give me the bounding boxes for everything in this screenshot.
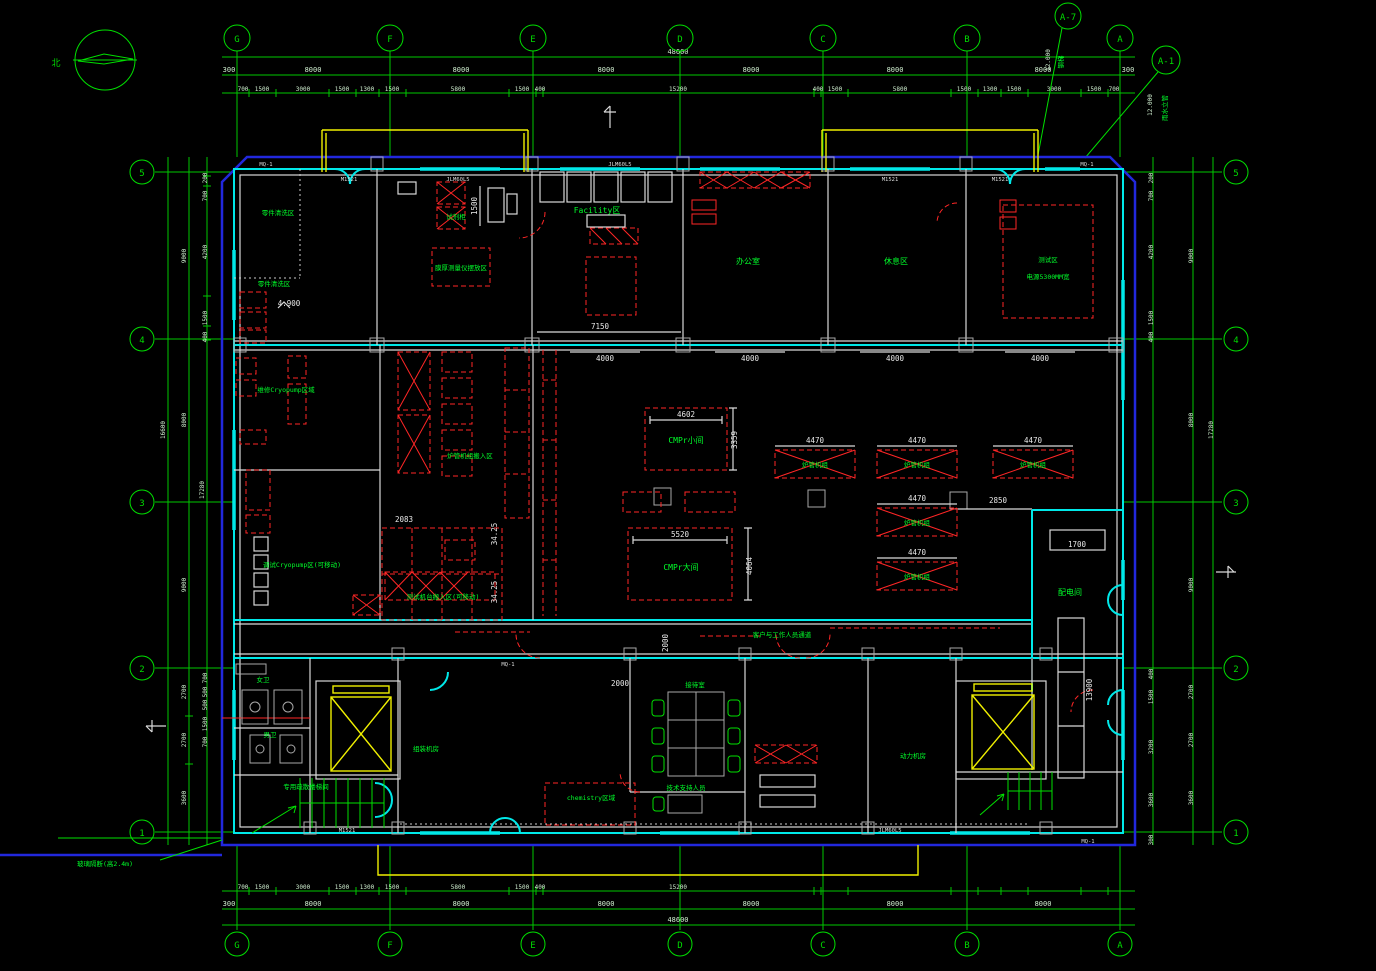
detail-ref-1: A-7 xyxy=(1060,13,1076,23)
grid-bubble-top-C: C xyxy=(810,25,836,51)
grid-right: 9000 8000 9000 2700 2700 3600 17280 200 … xyxy=(1123,157,1248,845)
svg-text:1500: 1500 xyxy=(470,196,479,215)
svg-text:1500: 1500 xyxy=(1148,689,1155,704)
room-label-office: 办公室 xyxy=(736,256,760,266)
svg-text:1500: 1500 xyxy=(1007,86,1022,93)
svg-text:300: 300 xyxy=(223,66,236,74)
svg-text:12.000: 12.000 xyxy=(1147,94,1154,116)
grid-bubble-bottom-A: A xyxy=(1108,932,1132,956)
svg-text:9000: 9000 xyxy=(1188,248,1195,263)
svg-text:2: 2 xyxy=(139,665,144,675)
grid-bubble-right-4: 4 xyxy=(1224,327,1248,351)
svg-text:700: 700 xyxy=(202,190,209,201)
room-label-parts-cleaning: 零件清洗区 xyxy=(258,279,291,288)
svg-text:300: 300 xyxy=(1148,834,1155,845)
cad-floorplan-canvas: 北 48600 300 8000 8000 8000 8000 8000 800… xyxy=(0,0,1376,971)
svg-text:4200: 4200 xyxy=(1148,244,1155,259)
svg-text:1500: 1500 xyxy=(828,86,843,93)
svg-text:700: 700 xyxy=(238,884,249,891)
grid-top: 48600 300 8000 8000 8000 8000 8000 8000 … xyxy=(222,25,1135,157)
floorplan-drawing: 北 48600 300 8000 8000 8000 8000 8000 800… xyxy=(0,0,1376,971)
svg-text:15200: 15200 xyxy=(669,86,687,93)
svg-text:E: E xyxy=(530,941,535,951)
svg-text:1300: 1300 xyxy=(360,884,375,891)
north-label: 北 xyxy=(51,58,60,69)
svg-text:500: 500 xyxy=(202,686,209,697)
svg-text:700: 700 xyxy=(202,736,209,747)
svg-text:MQ-1: MQ-1 xyxy=(259,162,272,168)
svg-text:12.000: 12.000 xyxy=(1045,49,1052,71)
debug-room-benches xyxy=(254,537,268,605)
svg-text:5800: 5800 xyxy=(451,884,466,891)
room-label-cryo-debug: 调试Cryopump区(可移动) xyxy=(263,560,341,569)
equipment-red xyxy=(236,172,1093,825)
svg-text:M1521: M1521 xyxy=(882,177,899,183)
grid-bubble-right-3: 3 xyxy=(1224,490,1248,514)
svg-text:500: 500 xyxy=(202,699,209,710)
grid-bubble-left-3: 3 xyxy=(130,490,154,514)
svg-text:A: A xyxy=(1117,941,1123,951)
svg-text:MQ-1: MQ-1 xyxy=(501,662,514,668)
svg-text:炉管机组: 炉管机组 xyxy=(802,460,829,469)
svg-text:MQ-1: MQ-1 xyxy=(1081,839,1094,845)
svg-text:2700: 2700 xyxy=(181,732,188,747)
room-label-parts-cleaning-upper: 零件清洗区 xyxy=(262,208,295,217)
grid-bubble-left-1: 1 xyxy=(130,820,154,844)
svg-text:400: 400 xyxy=(535,884,546,891)
svg-text:4000: 4000 xyxy=(1031,354,1050,363)
svg-text:8000: 8000 xyxy=(305,66,322,74)
corridor-label: 客户与工作人员通道 xyxy=(753,630,812,639)
room-label-cryo-repair: 维修Cryopump区域 xyxy=(257,385,315,394)
svg-text:炉管机组: 炉管机组 xyxy=(904,572,931,581)
wall-tags: MQ-1 M1521 JLM60L5 JLM60L5 M1521 M1521 M… xyxy=(259,162,1094,845)
svg-text:400: 400 xyxy=(1148,331,1155,342)
svg-text:MQ-1: MQ-1 xyxy=(1080,162,1093,168)
glass-partition-note: 玻璃隔断(高2.4m) xyxy=(77,859,133,868)
grid-bubble-top-E: E xyxy=(520,25,546,51)
svg-text:8000: 8000 xyxy=(743,66,760,74)
svg-text:8000: 8000 xyxy=(181,412,188,427)
svg-text:13900: 13900 xyxy=(1085,678,1094,701)
svg-text:4470: 4470 xyxy=(1024,436,1043,445)
svg-text:8000: 8000 xyxy=(598,900,615,908)
svg-text:2850: 2850 xyxy=(989,496,1008,505)
svg-text:F: F xyxy=(387,941,392,951)
svg-text:9000: 9000 xyxy=(181,248,188,263)
svg-text:1500: 1500 xyxy=(385,86,400,93)
room-label-film: 膜厚测量仪摆放区 xyxy=(435,263,488,272)
svg-text:C: C xyxy=(820,941,825,951)
svg-text:1500: 1500 xyxy=(1087,86,1102,93)
svg-text:700: 700 xyxy=(202,672,209,683)
svg-text:1500: 1500 xyxy=(1148,310,1155,325)
svg-text:3600: 3600 xyxy=(1148,792,1155,807)
grid-bubble-right-1: 1 xyxy=(1224,820,1248,844)
room-label-facility: Facility区 xyxy=(574,206,621,215)
svg-text:钢梯: 钢梯 xyxy=(1056,55,1065,69)
detail-ref-2: A-1 xyxy=(1158,57,1174,67)
svg-text:M1521: M1521 xyxy=(339,828,356,834)
svg-text:3359: 3359 xyxy=(730,431,739,449)
svg-text:B: B xyxy=(964,35,969,45)
grid-bubble-bottom-G: G xyxy=(225,932,249,956)
room-label-wc-women: 女卫 xyxy=(257,675,271,684)
grid-bottom: 700 1500 3000 1500 1300 1500 5800 1500 4… xyxy=(222,845,1135,956)
svg-text:炉管机组: 炉管机组 xyxy=(904,518,931,527)
grid-bubble-left-2: 2 xyxy=(130,656,154,680)
tech-desk xyxy=(653,795,702,813)
detail-callouts: A-7 12.000 钢梯 A-1 12.000 雨水立管 xyxy=(1038,3,1180,158)
svg-text:4064: 4064 xyxy=(745,556,754,575)
svg-text:8000: 8000 xyxy=(453,66,470,74)
svg-text:1500: 1500 xyxy=(202,310,209,325)
svg-text:3000: 3000 xyxy=(296,884,311,891)
svg-text:2700: 2700 xyxy=(1188,732,1195,747)
svg-text:1500: 1500 xyxy=(957,86,972,93)
svg-text:400: 400 xyxy=(202,331,209,342)
svg-text:1500: 1500 xyxy=(515,86,530,93)
room-labels: 零件清洗区 零件清洗区 维修Cryopump区域 调试Cryopump区(可移动… xyxy=(77,206,1082,868)
svg-text:E: E xyxy=(530,35,535,45)
svg-text:1500: 1500 xyxy=(515,884,530,891)
svg-text:G: G xyxy=(234,35,239,45)
svg-text:5: 5 xyxy=(1233,169,1238,179)
svg-text:400: 400 xyxy=(1148,668,1155,679)
svg-text:JLM60L5: JLM60L5 xyxy=(446,177,469,183)
svg-text:4: 4 xyxy=(1233,336,1238,346)
grid-bubble-bottom-F: F xyxy=(378,932,402,956)
svg-text:3200: 3200 xyxy=(1148,739,1155,754)
svg-text:9000: 9000 xyxy=(1188,577,1195,592)
svg-text:炉管机组: 炉管机组 xyxy=(904,460,931,469)
grid-bubble-bottom-E: E xyxy=(521,932,545,956)
dim-overall-bottom: 48600 xyxy=(667,916,688,924)
svg-text:34.25: 34.25 xyxy=(490,581,499,604)
svg-text:2000: 2000 xyxy=(661,633,670,652)
svg-text:雨水立管: 雨水立管 xyxy=(1160,95,1169,122)
svg-text:B: B xyxy=(964,941,969,951)
svg-text:4470: 4470 xyxy=(908,436,927,445)
conference-table xyxy=(652,692,740,776)
svg-text:4: 4 xyxy=(139,336,144,346)
svg-text:4470: 4470 xyxy=(806,436,825,445)
grid-bubble-left-5: 5 xyxy=(130,160,154,184)
grid-bubble-bottom-B: B xyxy=(955,932,979,956)
svg-text:5: 5 xyxy=(139,169,144,179)
svg-text:1500: 1500 xyxy=(202,716,209,731)
svg-text:3600: 3600 xyxy=(181,790,188,805)
svg-text:8000: 8000 xyxy=(887,66,904,74)
svg-text:1500: 1500 xyxy=(255,884,270,891)
room-label-tube-movein: 炉管机组搬入区 xyxy=(447,451,493,460)
north-compass: 北 xyxy=(51,30,137,90)
svg-text:2000: 2000 xyxy=(611,679,630,688)
svg-text:M1521: M1521 xyxy=(992,177,1009,183)
svg-text:M1521: M1521 xyxy=(341,177,358,183)
grid-bubble-top-G: G xyxy=(224,25,250,51)
svg-text:JLM60L5: JLM60L5 xyxy=(608,162,631,168)
svg-text:2700: 2700 xyxy=(1188,684,1195,699)
svg-text:7150: 7150 xyxy=(591,322,610,331)
svg-text:1500: 1500 xyxy=(335,884,350,891)
svg-text:2: 2 xyxy=(1233,665,1238,675)
room-label-plant: 动力机房 xyxy=(900,751,926,760)
svg-text:C: C xyxy=(820,35,825,45)
svg-text:3000: 3000 xyxy=(1047,86,1062,93)
svg-text:16600: 16600 xyxy=(160,421,167,439)
svg-text:8000: 8000 xyxy=(743,900,760,908)
svg-text:3000: 3000 xyxy=(296,86,311,93)
svg-text:4200: 4200 xyxy=(202,244,209,259)
svg-text:1300: 1300 xyxy=(360,86,375,93)
svg-text:5800: 5800 xyxy=(451,86,466,93)
room-label-assembly: 组装机房 xyxy=(413,744,439,753)
room-label-test-1: 测试区 xyxy=(1038,255,1058,264)
svg-text:400: 400 xyxy=(535,86,546,93)
svg-text:700: 700 xyxy=(1148,190,1155,201)
grid-bubble-top-B: B xyxy=(954,25,980,51)
room-label-test-2: 电源5300MM宽 xyxy=(1027,272,1070,281)
svg-text:2700: 2700 xyxy=(181,684,188,699)
svg-text:F: F xyxy=(387,35,392,45)
svg-text:9000: 9000 xyxy=(181,577,188,592)
svg-text:G: G xyxy=(234,941,239,951)
svg-text:700: 700 xyxy=(238,86,249,93)
svg-text:8000: 8000 xyxy=(1035,900,1052,908)
svg-text:4000: 4000 xyxy=(596,354,615,363)
grid-bubble-top-F: F xyxy=(377,25,403,51)
svg-text:700: 700 xyxy=(1109,86,1120,93)
svg-text:3: 3 xyxy=(1233,499,1238,509)
svg-text:3: 3 xyxy=(139,499,144,509)
svg-text:4000: 4000 xyxy=(741,354,760,363)
svg-text:1300: 1300 xyxy=(983,86,998,93)
room-label-wc-men: 男卫 xyxy=(264,731,278,739)
svg-text:5520: 5520 xyxy=(671,530,690,539)
svg-text:8000: 8000 xyxy=(887,900,904,908)
svg-text:A: A xyxy=(1117,35,1123,45)
room-label-reception: 接待室 xyxy=(685,680,705,689)
svg-text:15200: 15200 xyxy=(669,884,687,891)
svg-text:炉管机组: 炉管机组 xyxy=(1020,460,1047,469)
grid-bubble-bottom-D: D xyxy=(668,932,692,956)
svg-text:17280: 17280 xyxy=(1208,421,1215,439)
svg-text:1500: 1500 xyxy=(255,86,270,93)
svg-text:8000: 8000 xyxy=(453,900,470,908)
svg-text:8000: 8000 xyxy=(598,66,615,74)
grid-bubble-right-2: 2 xyxy=(1224,656,1248,680)
facility-cabinets xyxy=(540,172,672,227)
svg-text:300: 300 xyxy=(223,900,236,908)
svg-text:D: D xyxy=(677,35,682,45)
room-label-chem: chemistry区域 xyxy=(567,793,616,802)
room-label-cmp-large: CMPr大间 xyxy=(663,562,698,572)
svg-text:17280: 17280 xyxy=(199,481,206,499)
grid-left: 9000 8000 9000 2700 2700 3600 16600 1728… xyxy=(130,157,234,845)
svg-text:8000: 8000 xyxy=(1188,412,1195,427)
room-label-cmp-small: CMPr小间 xyxy=(668,436,703,445)
svg-text:200: 200 xyxy=(1148,172,1155,183)
hatch-box xyxy=(437,182,465,229)
svg-text:4602: 4602 xyxy=(677,410,695,419)
section-markers xyxy=(146,106,1236,732)
svg-text:1500: 1500 xyxy=(385,884,400,891)
svg-text:JLM60L5: JLM60L5 xyxy=(878,828,901,834)
grid-bubble-right-5: 5 xyxy=(1224,160,1248,184)
svg-text:200: 200 xyxy=(202,172,209,183)
svg-text:2083: 2083 xyxy=(395,515,413,524)
grid-bubble-top-A: A xyxy=(1107,25,1133,51)
stair-label: 专用疏散楼梯间 xyxy=(283,782,329,791)
svg-text:400: 400 xyxy=(813,86,824,93)
svg-text:1: 1 xyxy=(1233,829,1238,839)
grid-bubble-left-4: 4 xyxy=(130,327,154,351)
svg-text:4470: 4470 xyxy=(908,548,927,557)
room-label-power: 配电间 xyxy=(1058,587,1082,597)
room-label-reagent: 试剂柜 xyxy=(446,212,466,221)
svg-text:34.25: 34.25 xyxy=(490,523,499,546)
svg-text:3600: 3600 xyxy=(1188,790,1195,805)
svg-text:4000: 4000 xyxy=(886,354,905,363)
svg-text:8000: 8000 xyxy=(305,900,322,908)
room-label-lounge: 休息区 xyxy=(884,256,908,266)
interior-walls xyxy=(222,169,1123,833)
dim-overall-top: 48600 xyxy=(667,48,688,56)
grid-bubble-bottom-C: C xyxy=(811,932,835,956)
freight-elevator xyxy=(316,681,400,779)
svg-text:300: 300 xyxy=(1122,66,1135,74)
svg-text:D: D xyxy=(677,941,682,951)
svg-text:5800: 5800 xyxy=(893,86,908,93)
room-label-tech: 技术支持人员 xyxy=(667,783,707,792)
svg-text:4470: 4470 xyxy=(908,494,927,503)
svg-text:1700: 1700 xyxy=(1068,540,1087,549)
power-room-equipment xyxy=(760,530,1105,807)
room-label-test-movein: 测试机台搬入区(可移动) xyxy=(407,592,480,601)
svg-text:1500: 1500 xyxy=(335,86,350,93)
